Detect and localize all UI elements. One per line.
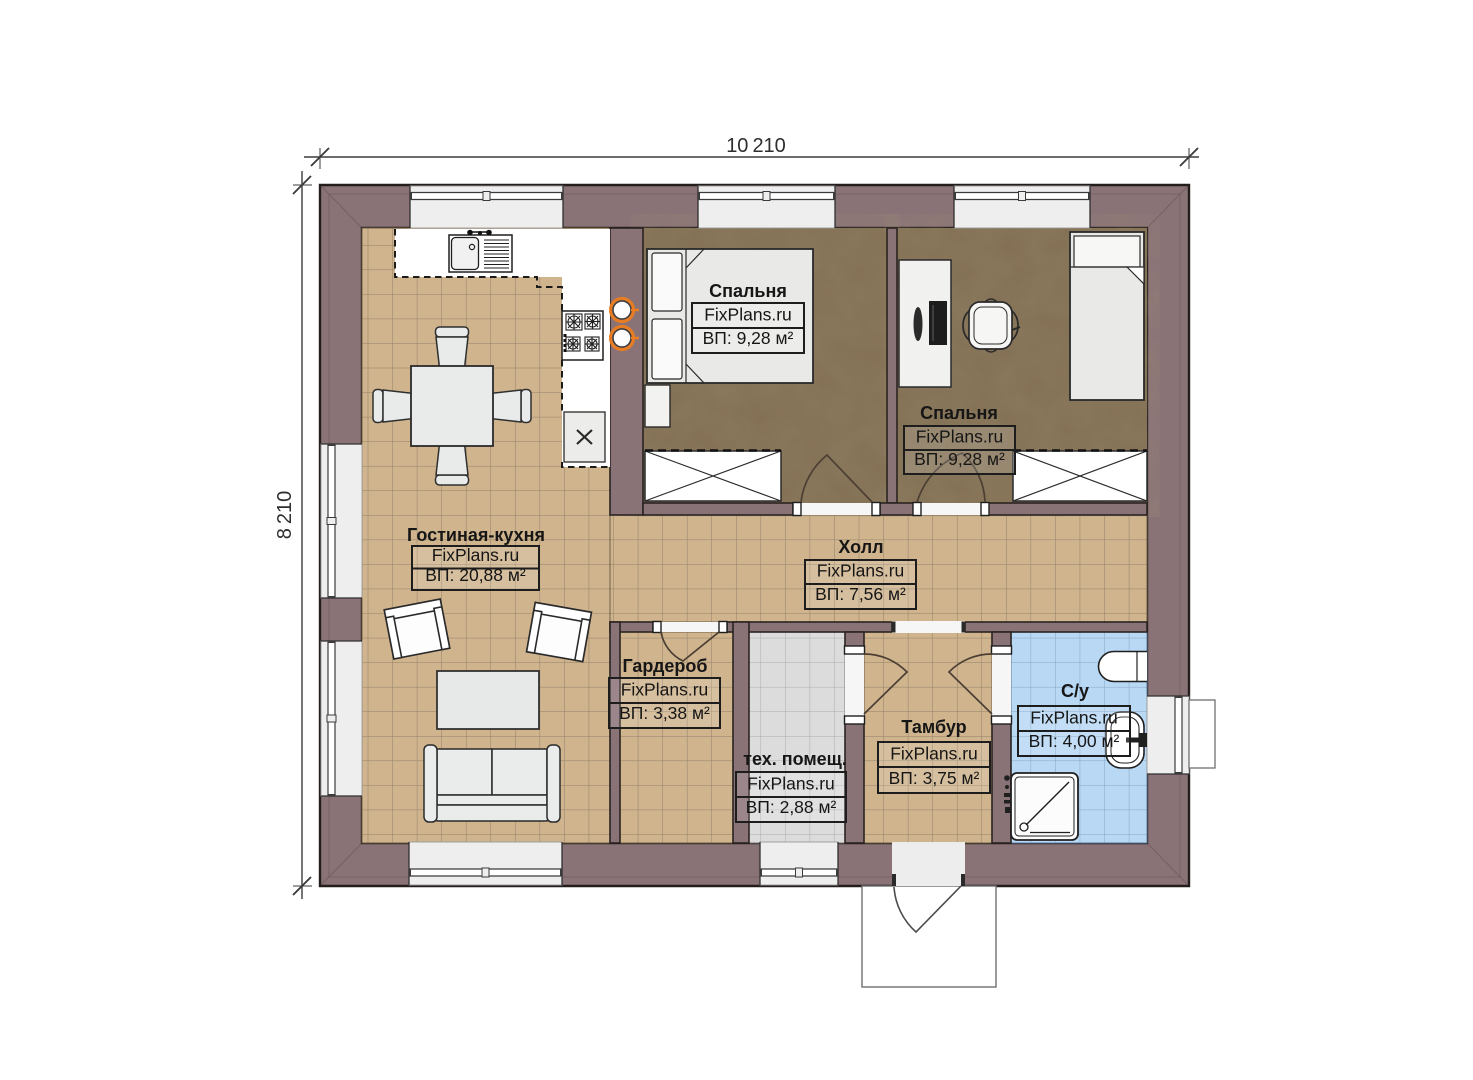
svg-text:тех. помещ.: тех. помещ.: [743, 749, 847, 769]
svg-text:Спальня: Спальня: [920, 403, 998, 423]
svg-text:ВП: 7,56 м²: ВП: 7,56 м²: [815, 584, 906, 604]
svg-text:FixPlans.ru: FixPlans.ru: [1030, 708, 1118, 728]
svg-text:8 210: 8 210: [274, 491, 296, 540]
svg-text:ВП: 3,38 м²: ВП: 3,38 м²: [619, 703, 710, 723]
svg-text:Холл: Холл: [838, 537, 883, 557]
svg-text:ВП: 20,88 м²: ВП: 20,88 м²: [425, 565, 526, 585]
svg-text:ВП: 3,75 м²: ВП: 3,75 м²: [889, 768, 980, 788]
svg-text:FixPlans.ru: FixPlans.ru: [432, 545, 520, 565]
svg-text:FixPlans.ru: FixPlans.ru: [817, 561, 905, 581]
svg-text:ВП: 2,88 м²: ВП: 2,88 м²: [746, 797, 837, 817]
svg-text:Гостиная-кухня: Гостиная-кухня: [407, 525, 545, 545]
svg-text:FixPlans.ru: FixPlans.ru: [704, 305, 792, 325]
svg-text:Тамбур: Тамбур: [901, 717, 966, 737]
svg-text:Гардероб: Гардероб: [622, 656, 707, 676]
svg-text:Спальня: Спальня: [709, 281, 787, 301]
svg-text:FixPlans.ru: FixPlans.ru: [890, 744, 978, 764]
svg-text:FixPlans.ru: FixPlans.ru: [916, 427, 1004, 447]
svg-text:FixPlans.ru: FixPlans.ru: [747, 774, 835, 794]
svg-text:ВП: 9,28 м²: ВП: 9,28 м²: [914, 449, 1005, 469]
svg-text:С/у: С/у: [1061, 681, 1089, 701]
svg-text:ВП: 4,00 м²: ВП: 4,00 м²: [1029, 731, 1120, 751]
svg-text:FixPlans.ru: FixPlans.ru: [621, 680, 709, 700]
svg-text:10 210: 10 210: [726, 135, 786, 157]
svg-text:ВП: 9,28 м²: ВП: 9,28 м²: [703, 328, 794, 348]
